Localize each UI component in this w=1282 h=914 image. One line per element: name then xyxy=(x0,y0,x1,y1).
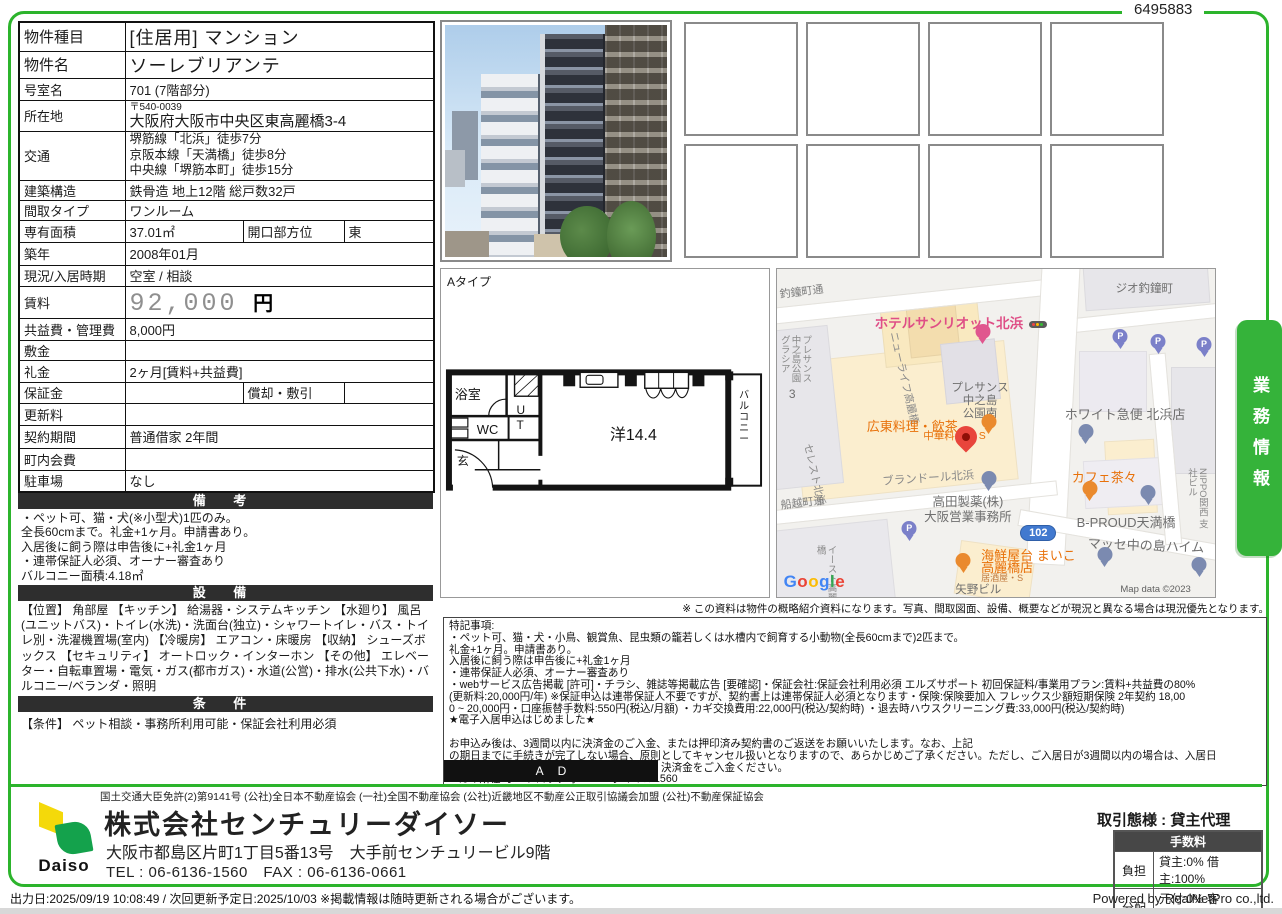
table-row: 礼金 2ヶ月[賃料+共益費] xyxy=(19,360,434,382)
field-value: 堺筋線「北浜」徒歩7分 京阪本線「天満橋」徒歩8分 中央線「堺筋本町」徒歩15分 xyxy=(125,131,434,180)
field-label: 開口部方位 xyxy=(243,220,344,242)
property-flyer-page: 6495883 物件種目 [住居用] マンション 物件名 ソーレブリアンテ 号室… xyxy=(0,0,1282,914)
rent-amount: 92,000 xyxy=(130,289,238,318)
table-row: 専有面積 37.01㎡ 開口部方位 東 xyxy=(19,220,434,242)
remarks-line: 全長60cmまで。礼金+1ヶ月。申請書あり。 xyxy=(21,525,430,539)
table-row: 駐車場 なし xyxy=(19,470,434,492)
field-value: 空室 / 相談 xyxy=(125,265,434,286)
photo-placeholder xyxy=(806,22,920,136)
restaurant-pin-icon xyxy=(956,553,971,577)
field-value: 2ヶ月[賃料+共益費] xyxy=(125,360,434,382)
field-label: 築年 xyxy=(19,242,125,265)
photo-placeholder xyxy=(1050,144,1164,258)
daiso-logo-text: Daiso xyxy=(28,856,100,876)
poi-pin-icon xyxy=(981,471,996,495)
photo-placeholder xyxy=(928,22,1042,136)
field-label: 専有面積 xyxy=(19,220,125,242)
table-row: 保証金 償却・敷引 xyxy=(19,382,434,403)
fee-row-label: 負担 xyxy=(1114,852,1154,889)
field-label: 共益費・管理費 xyxy=(19,318,125,340)
hotel-pin-icon xyxy=(975,324,990,348)
google-logo-letter: g xyxy=(819,572,830,591)
google-logo-letter: o xyxy=(797,572,808,591)
bottom-strip xyxy=(0,908,1282,914)
table-row: 築年 2008年01月 xyxy=(19,242,434,265)
field-value: 2008年01月 xyxy=(125,242,434,265)
table-row: 号室名 701 (7階部分) xyxy=(19,78,434,100)
transport-line: 京阪本線「天満橋」徒歩8分 xyxy=(130,148,430,164)
address-text: 大阪府大阪市中央区東高麗橋3-4 xyxy=(130,113,430,130)
field-label: 保証金 xyxy=(19,382,125,403)
table-row: 間取タイプ ワンルーム xyxy=(19,200,434,220)
license-line: 国土交通大臣免許(2)第9141号 (公社)全日本不動産協会 (一社)全国不動産… xyxy=(100,789,764,804)
google-logo-letter: e xyxy=(835,572,845,591)
floor-plan: Aタイプ xyxy=(440,268,770,598)
property-table: 物件種目 [住居用] マンション 物件名 ソーレブリアンテ 号室名 701 (7… xyxy=(18,21,435,493)
company-tel-fax: TEL : 06-6136-1560 FAX : 06-6136-0661 xyxy=(106,861,407,882)
field-value: 8,000円 xyxy=(125,318,434,340)
photo-placeholder xyxy=(928,144,1042,258)
notes-line: ★電子入居申込はじめました★ xyxy=(449,715,1266,727)
field-label: 所在地 xyxy=(19,100,125,131)
remarks-line: ・ペット可、猫・犬(※小型犬)1匹のみ。 xyxy=(21,511,430,525)
field-label: 賃料 xyxy=(19,286,125,318)
fee-table-header: 手数料 xyxy=(1114,831,1262,852)
field-label: 町内会費 xyxy=(19,448,125,470)
rent-value: 92,000 円 xyxy=(125,286,434,318)
poi-pin-icon xyxy=(1078,424,1093,448)
field-value: 〒540-0039 大阪府大阪市中央区東高麗橋3-4 xyxy=(125,100,434,131)
room-label-main: 洋14.4 xyxy=(610,426,657,444)
table-row: 更新料 xyxy=(19,403,434,425)
floor-plan-type-label: Aタイプ xyxy=(447,273,491,290)
field-value: 701 (7階部分) xyxy=(125,78,434,100)
conditions-text: 【条件】 ペット相談・事務所利用可能・保証会社利用必須 xyxy=(18,712,433,735)
photo-grid xyxy=(684,22,1164,258)
table-row: 物件名 ソーレブリアンテ xyxy=(19,51,434,78)
field-value xyxy=(125,403,434,425)
field-label: 契約期間 xyxy=(19,425,125,448)
powered-by: Powered by RealNetPro co.,ltd. xyxy=(1093,891,1274,906)
remarks-header: 備 考 xyxy=(18,493,433,509)
table-row: 現況/入居時期 空室 / 相談 xyxy=(19,265,434,286)
property-summary-panel: 物件種目 [住居用] マンション 物件名 ソーレブリアンテ 号室名 701 (7… xyxy=(18,21,433,735)
field-value: [住居用] マンション xyxy=(125,22,434,51)
parking-pin-icon: P xyxy=(1113,329,1128,353)
business-info-tab-label: 業務情報 xyxy=(1247,376,1272,500)
parking-pin-icon: P xyxy=(1151,334,1166,358)
field-value: ワンルーム xyxy=(125,200,434,220)
document-number: 6495883 xyxy=(1122,1,1204,18)
photo-placeholder xyxy=(684,144,798,258)
field-value xyxy=(125,382,243,403)
table-row: 町内会費 xyxy=(19,448,434,470)
room-label-bath: 浴室 xyxy=(455,387,481,402)
field-label: 号室名 xyxy=(19,78,125,100)
remarks-line: バルコニー面積:4.18㎡ xyxy=(21,569,430,583)
ad-label: AD xyxy=(444,760,658,782)
notes-line: ・ペット可、猫・犬・小鳥、観賞魚、昆虫類の籠若しくは水槽内で飼育する小動物(全長… xyxy=(449,633,1266,645)
restaurant-pin-icon xyxy=(981,414,996,438)
google-logo-letter: G xyxy=(784,572,798,591)
table-row: 共益費・管理費 8,000円 xyxy=(19,318,434,340)
company-address: 大阪市都島区片町1丁目5番13号 大手前センチュリービル9階 xyxy=(106,839,551,863)
table-row: 負担 貸主:0% 借主:100% xyxy=(1114,852,1262,889)
field-label: 更新料 xyxy=(19,403,125,425)
disclaimer-note: ※ この資料は物件の概略紹介資料になります。写真、間取図面、設備、概要などが現況… xyxy=(443,601,1269,616)
table-row: 物件種目 [住居用] マンション xyxy=(19,22,434,51)
output-date-line: 出力日:2025/09/19 10:08:49 / 次回更新予定日:2025/1… xyxy=(10,890,581,907)
notes-line: (更新料:20,000円/年) ※保証申込は連帯保証人不要ですが、契約書上は連帯… xyxy=(449,692,1266,704)
daiso-logo-mark xyxy=(33,802,95,854)
table-row: 所在地 〒540-0039 大阪府大阪市中央区東高麗橋3-4 xyxy=(19,100,434,131)
field-label: 物件名 xyxy=(19,51,125,78)
fee-row-value: 貸主:0% 借主:100% xyxy=(1154,852,1263,889)
cafe-pin-icon xyxy=(1082,481,1097,505)
room-label-entrance: 玄 xyxy=(457,454,469,468)
google-logo-letter: o xyxy=(808,572,819,591)
remarks-lines: ・ペット可、猫・犬(※小型犬)1匹のみ。全長60cmまで。礼金+1ヶ月。申請書あ… xyxy=(18,509,433,585)
field-value: 普通借家 2年間 xyxy=(125,425,434,448)
traffic-pin-icon xyxy=(1029,321,1047,328)
conditions-header: 条 件 xyxy=(18,696,433,712)
field-label: 交通 xyxy=(19,131,125,180)
building-photo xyxy=(440,20,672,262)
field-label: 敷金 xyxy=(19,340,125,360)
transport-line: 中央線「堺筋本町」徒歩15分 xyxy=(130,163,430,179)
route-number-badge: 102 xyxy=(1020,525,1056,541)
company-logo: Daiso xyxy=(28,802,100,882)
table-row: 賃料 92,000 円 xyxy=(19,286,434,318)
room-label-ut: UT xyxy=(517,403,526,432)
business-info-tab[interactable]: 業務情報 xyxy=(1237,320,1282,556)
field-label: 現況/入居時期 xyxy=(19,265,125,286)
poi-pin-icon xyxy=(1097,547,1112,571)
deal-type: 取引態様 : 貸主代理 xyxy=(1097,809,1230,830)
field-value: 鉄骨造 地上12階 総戸数32戸 xyxy=(125,180,434,200)
parking-pin-icon: P xyxy=(902,521,917,545)
field-value: 東 xyxy=(344,220,434,242)
photo-placeholder xyxy=(1050,22,1164,136)
remarks-line: ・連帯保証人必須、オーナー審査あり xyxy=(21,554,430,568)
field-label: 償却・敷引 xyxy=(243,382,344,403)
field-label: 駐車場 xyxy=(19,470,125,492)
field-value: 37.01㎡ xyxy=(125,220,243,242)
field-label: 建築構造 xyxy=(19,180,125,200)
parking-pin-icon: P xyxy=(1197,337,1212,361)
special-notes-box: 特記事項:・ペット可、猫・犬・小鳥、観賞魚、昆虫類の籠若しくは水槽内で飼育する小… xyxy=(443,617,1267,786)
table-row: 契約期間 普通借家 2年間 xyxy=(19,425,434,448)
field-value xyxy=(125,448,434,470)
field-value xyxy=(125,340,434,360)
photo-placeholder xyxy=(806,144,920,258)
table-row: 交通 堺筋線「北浜」徒歩7分 京阪本線「天満橋」徒歩8分 中央線「堺筋本町」徒歩… xyxy=(19,131,434,180)
rent-unit: 円 xyxy=(253,293,273,315)
transport-line: 堺筋線「北浜」徒歩7分 xyxy=(130,132,430,148)
field-label: 間取タイプ xyxy=(19,200,125,220)
red-pin-icon xyxy=(955,426,977,448)
table-row: 敷金 xyxy=(19,340,434,360)
room-label-wc: WC xyxy=(477,422,499,437)
field-value: なし xyxy=(125,470,434,492)
field-label: 礼金 xyxy=(19,360,125,382)
poi-pin-icon xyxy=(1192,557,1207,581)
equipment-text: 【位置】 角部屋 【キッチン】 給湯器・システムキッチン 【水廻り】 風呂(ユニ… xyxy=(18,601,433,696)
field-value: ソーレブリアンテ xyxy=(125,51,434,78)
floor-plan-drawing: 浴室 WC UT 玄 洋14.4 バルコニー xyxy=(441,269,769,597)
remarks-line: 入居後に飼う際は申告後に+礼金1ヶ月 xyxy=(21,540,430,554)
postal-code: 〒540-0039 xyxy=(130,102,430,113)
table-row: 建築構造 鉄骨造 地上12階 総戸数32戸 xyxy=(19,180,434,200)
poi-pin-icon xyxy=(1141,485,1156,509)
notes-line: ・webサービス広告掲載 [許可]・チラシ、雑誌等掲載広告 [要確認]・保証会社… xyxy=(449,680,1266,692)
equipment-header: 設 備 xyxy=(18,585,433,601)
field-label: 物件種目 xyxy=(19,22,125,51)
room-label-balcony: バルコニー xyxy=(739,389,749,445)
photo-placeholder xyxy=(684,22,798,136)
building-photo-art xyxy=(445,25,667,257)
google-logo: Google xyxy=(784,572,846,592)
map-pins: PPPP xyxy=(777,269,1215,597)
company-name: 株式会社センチュリーダイソー xyxy=(104,803,510,842)
notes-line: お申込み後は、3週間以内に決済金のご入金、または押印済み契約書のご返送をお願いい… xyxy=(449,739,1266,751)
footer-divider xyxy=(10,784,1262,787)
location-map: 釣鐘町通ジオ釣鐘町ホテルサンリオット北浜プレサンス中之島公園グラシア3ニューライ… xyxy=(776,268,1216,598)
field-value xyxy=(344,382,434,403)
